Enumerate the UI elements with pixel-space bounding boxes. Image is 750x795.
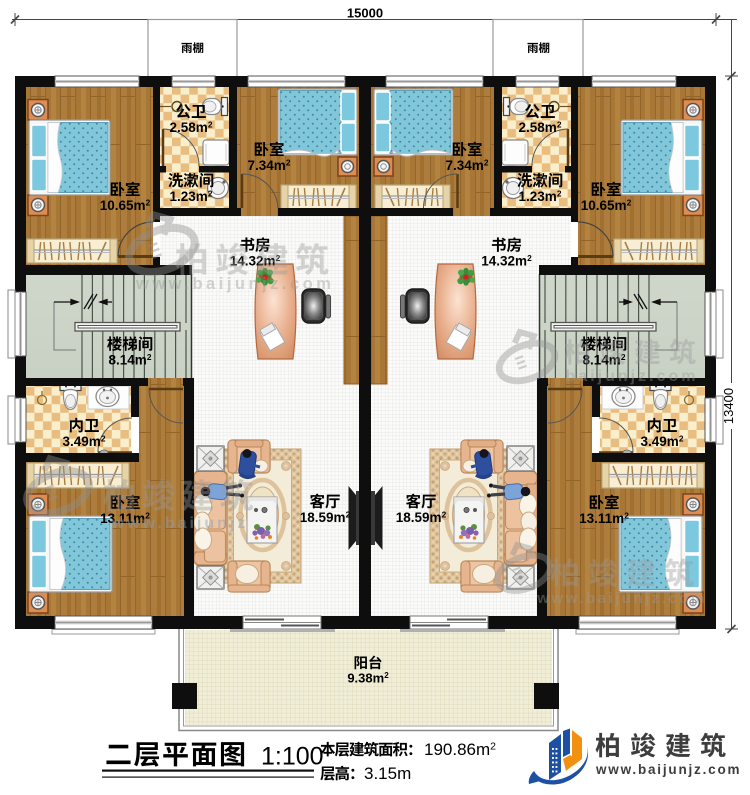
svg-text:3.49m2: 3.49m2: [641, 433, 684, 449]
svg-text:2.58m2: 2.58m2: [519, 119, 562, 135]
svg-text:3.15m: 3.15m: [364, 764, 411, 783]
svg-text:baijunjz.com: baijunjz.com: [566, 368, 699, 385]
svg-text:10.65m2: 10.65m2: [581, 197, 632, 213]
svg-text:8.14m2: 8.14m2: [109, 352, 152, 368]
svg-text:www.baijunjz.com: www.baijunjz.com: [135, 275, 334, 293]
svg-text:www.baijunjz: www.baijunjz: [111, 515, 249, 532]
svg-text:2.58m2: 2.58m2: [170, 119, 213, 135]
svg-text:18.59m2: 18.59m2: [396, 509, 447, 525]
svg-text:7.34m2: 7.34m2: [248, 157, 291, 173]
svg-text:www.baijunjz.com: www.baijunjz.com: [536, 590, 706, 607]
svg-text:7.34m2: 7.34m2: [446, 157, 489, 173]
svg-text:3.49m2: 3.49m2: [63, 433, 106, 449]
svg-text:15000: 15000: [347, 6, 383, 21]
svg-text:18.59m2: 18.59m2: [300, 509, 351, 525]
svg-text:13.11m2: 13.11m2: [579, 510, 629, 526]
svg-text:9.38m2: 9.38m2: [347, 671, 389, 686]
svg-text:14.32m2: 14.32m2: [481, 253, 532, 269]
svg-text:1.23m2: 1.23m2: [170, 188, 213, 204]
svg-text:190.86m2: 190.86m2: [424, 740, 496, 759]
svg-text:www.baijunjz.com: www.baijunjz.com: [595, 762, 741, 777]
svg-text:1:100: 1:100: [261, 743, 324, 771]
svg-text:1.23m2: 1.23m2: [519, 188, 562, 204]
svg-text:10.65m2: 10.65m2: [100, 197, 151, 213]
